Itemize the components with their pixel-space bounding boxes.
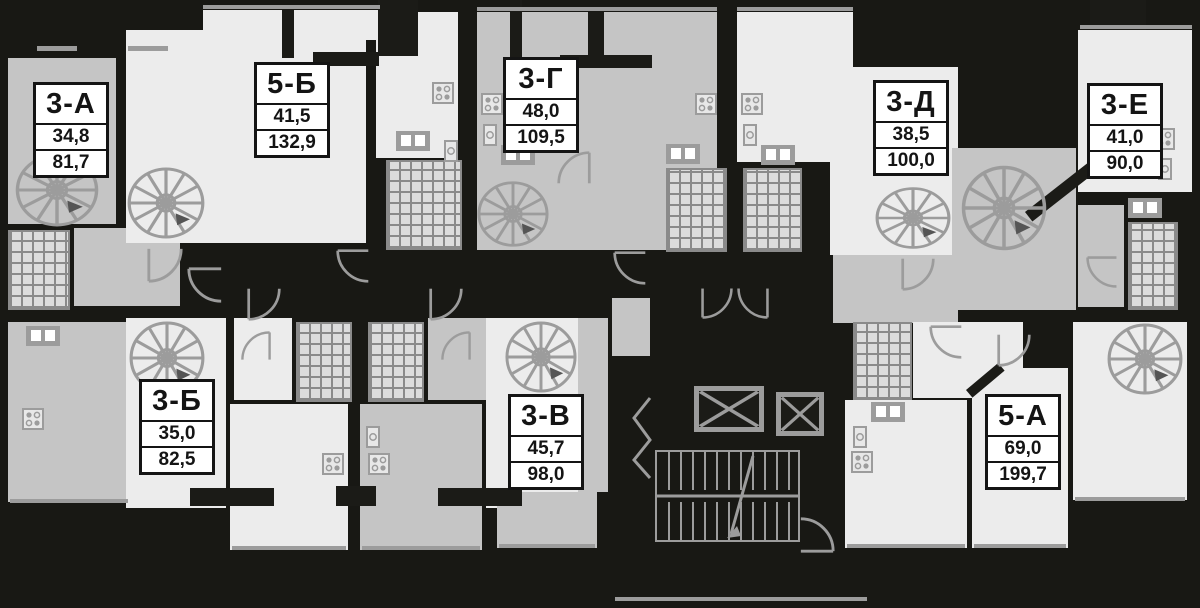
total-area: 100,0	[876, 147, 946, 173]
door-arc-icon	[240, 330, 272, 362]
window-sill	[203, 5, 380, 9]
hatch-bathroom	[853, 322, 912, 401]
total-area: 132,9	[257, 129, 327, 155]
elevator-icon	[694, 386, 764, 432]
room-5a-kitchen	[845, 400, 967, 548]
total-area: 199,7	[988, 461, 1058, 487]
living-area: 48,0	[506, 100, 576, 124]
window-sill	[128, 46, 168, 51]
apartment-label-5a[interactable]: 5-А 69,0 199,7	[985, 394, 1061, 490]
room-core-lobby	[612, 298, 650, 356]
apartment-id: 3-В	[511, 397, 581, 437]
door-arc-icon	[1085, 255, 1119, 289]
total-area: 109,5	[506, 124, 576, 150]
apartment-id: 5-Б	[257, 65, 327, 105]
window-sill	[232, 546, 346, 550]
room-3b-living	[230, 404, 348, 550]
door-arc-icon	[335, 248, 371, 284]
window-icon	[666, 144, 700, 164]
hatch-bathroom	[666, 168, 727, 252]
wall-stub	[378, 0, 418, 56]
stove-icon	[741, 93, 763, 115]
apartment-label-5b[interactable]: 5-Б 41,5 132,9	[254, 62, 330, 158]
total-area: 90,0	[1090, 150, 1160, 176]
wall-stub	[336, 486, 376, 506]
living-area: 35,0	[142, 422, 212, 446]
room-3d-hall	[833, 255, 958, 323]
apartment-id: 5-А	[988, 397, 1058, 437]
apartment-id: 3-А	[36, 85, 106, 125]
spiral-stair-icon	[476, 180, 550, 248]
window-sill	[37, 46, 77, 51]
window-sill	[847, 544, 965, 548]
door-arc-icon	[928, 324, 964, 360]
door-arc-icon	[612, 250, 648, 286]
apartment-label-3v[interactable]: 3-В 45,7 98,0	[508, 394, 584, 490]
apartment-label-3a[interactable]: 3-А 34,8 81,7	[33, 82, 109, 178]
apartment-id: 3-Г	[506, 60, 576, 100]
stove-icon	[322, 453, 344, 475]
spiral-stair-icon	[126, 166, 206, 240]
apartment-id: 3-Е	[1090, 86, 1160, 126]
apartment-id: 3-Б	[142, 382, 212, 422]
hatch-bathroom	[368, 322, 424, 402]
hatch-bathroom	[743, 168, 802, 252]
window-sill	[362, 546, 480, 550]
window-icon	[871, 402, 905, 422]
hatch-bathroom	[8, 230, 70, 310]
total-area: 98,0	[511, 461, 581, 487]
stove-icon	[481, 93, 503, 115]
apartment-label-3g[interactable]: 3-Г 48,0 109,5	[503, 57, 579, 153]
window-sill	[974, 544, 1066, 548]
washer-icon	[444, 140, 458, 162]
window-sill	[737, 7, 853, 11]
living-area: 38,5	[876, 123, 946, 147]
stove-icon	[22, 408, 44, 430]
wall-stub	[438, 488, 522, 506]
spiral-stair-icon	[504, 320, 578, 394]
door-arc-icon	[556, 150, 592, 186]
staircase-icon	[655, 450, 800, 542]
living-area: 41,0	[1090, 126, 1160, 150]
wall-stub	[588, 12, 604, 68]
washer-icon	[483, 124, 497, 146]
door-arc-icon	[700, 286, 734, 320]
building-outline	[615, 597, 867, 601]
apartment-label-3d[interactable]: 3-Д 38,5 100,0	[873, 80, 949, 176]
washer-icon	[366, 426, 380, 448]
folding-door-icon	[630, 396, 654, 480]
stove-icon	[368, 453, 390, 475]
door-arc-icon	[996, 332, 1032, 368]
stove-icon	[851, 451, 873, 473]
wall-stub	[190, 488, 274, 506]
window-icon	[396, 131, 430, 151]
window-icon	[761, 145, 795, 165]
wall-stub	[282, 10, 294, 58]
living-area: 41,5	[257, 105, 327, 129]
living-area: 69,0	[988, 437, 1058, 461]
elevator-icon	[776, 392, 824, 436]
door-arc-icon	[798, 516, 836, 554]
hatch-bathroom	[386, 160, 462, 250]
living-area: 45,7	[511, 437, 581, 461]
door-arc-icon	[186, 266, 224, 304]
door-arc-icon	[246, 286, 282, 322]
apartment-id: 3-Д	[876, 83, 946, 123]
window-sill	[10, 499, 128, 503]
door-arc-icon	[440, 330, 472, 362]
washer-icon	[853, 426, 867, 448]
door-arc-icon	[146, 246, 184, 284]
window-icon	[1128, 198, 1162, 218]
door-arc-icon	[736, 286, 770, 320]
total-area: 82,5	[142, 446, 212, 472]
window-sill	[499, 544, 595, 548]
spiral-stair-icon	[1106, 322, 1184, 396]
spiral-stair-icon	[960, 164, 1048, 252]
stove-icon	[695, 93, 717, 115]
hatch-bathroom	[1128, 222, 1178, 310]
window-sill	[1075, 497, 1185, 501]
door-arc-icon	[900, 256, 936, 292]
apartment-label-3e[interactable]: 3-Е 41,0 90,0	[1087, 83, 1163, 179]
living-area: 34,8	[36, 125, 106, 149]
window-sill	[1080, 25, 1192, 29]
window-icon	[26, 326, 60, 346]
window-sill	[477, 7, 717, 11]
washer-icon	[743, 124, 757, 146]
door-arc-icon	[428, 286, 464, 322]
stove-icon	[432, 82, 454, 104]
spiral-stair-icon	[874, 186, 952, 250]
total-area: 81,7	[36, 149, 106, 175]
hatch-bathroom	[296, 322, 352, 402]
apartment-label-3b[interactable]: 3-Б 35,0 82,5	[139, 379, 215, 475]
floor-plan: 3-А 34,8 81,7 5-Б 41,5 132,9 3-Г 48,0 10…	[0, 0, 1200, 608]
